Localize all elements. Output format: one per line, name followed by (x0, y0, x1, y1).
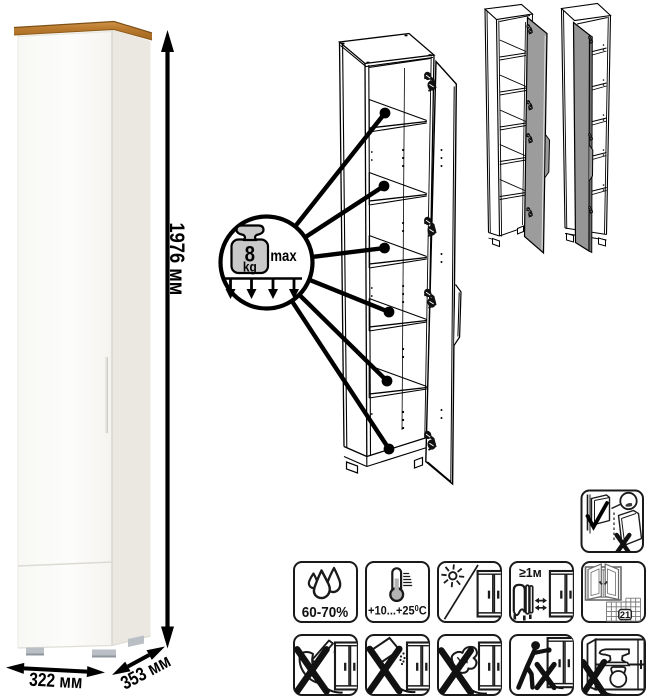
svg-text:322 мм: 322 мм (29, 668, 83, 693)
svg-text:1976 мм: 1976 мм (165, 223, 189, 296)
svg-text:21: 21 (620, 610, 631, 621)
svg-text:60-70%: 60-70% (302, 604, 349, 621)
svg-text:+10...+250С: +10...+250С (368, 604, 427, 618)
svg-text:≥1м: ≥1м (519, 566, 542, 580)
svg-text:kg: kg (243, 259, 257, 275)
svg-text:max: max (270, 248, 297, 265)
